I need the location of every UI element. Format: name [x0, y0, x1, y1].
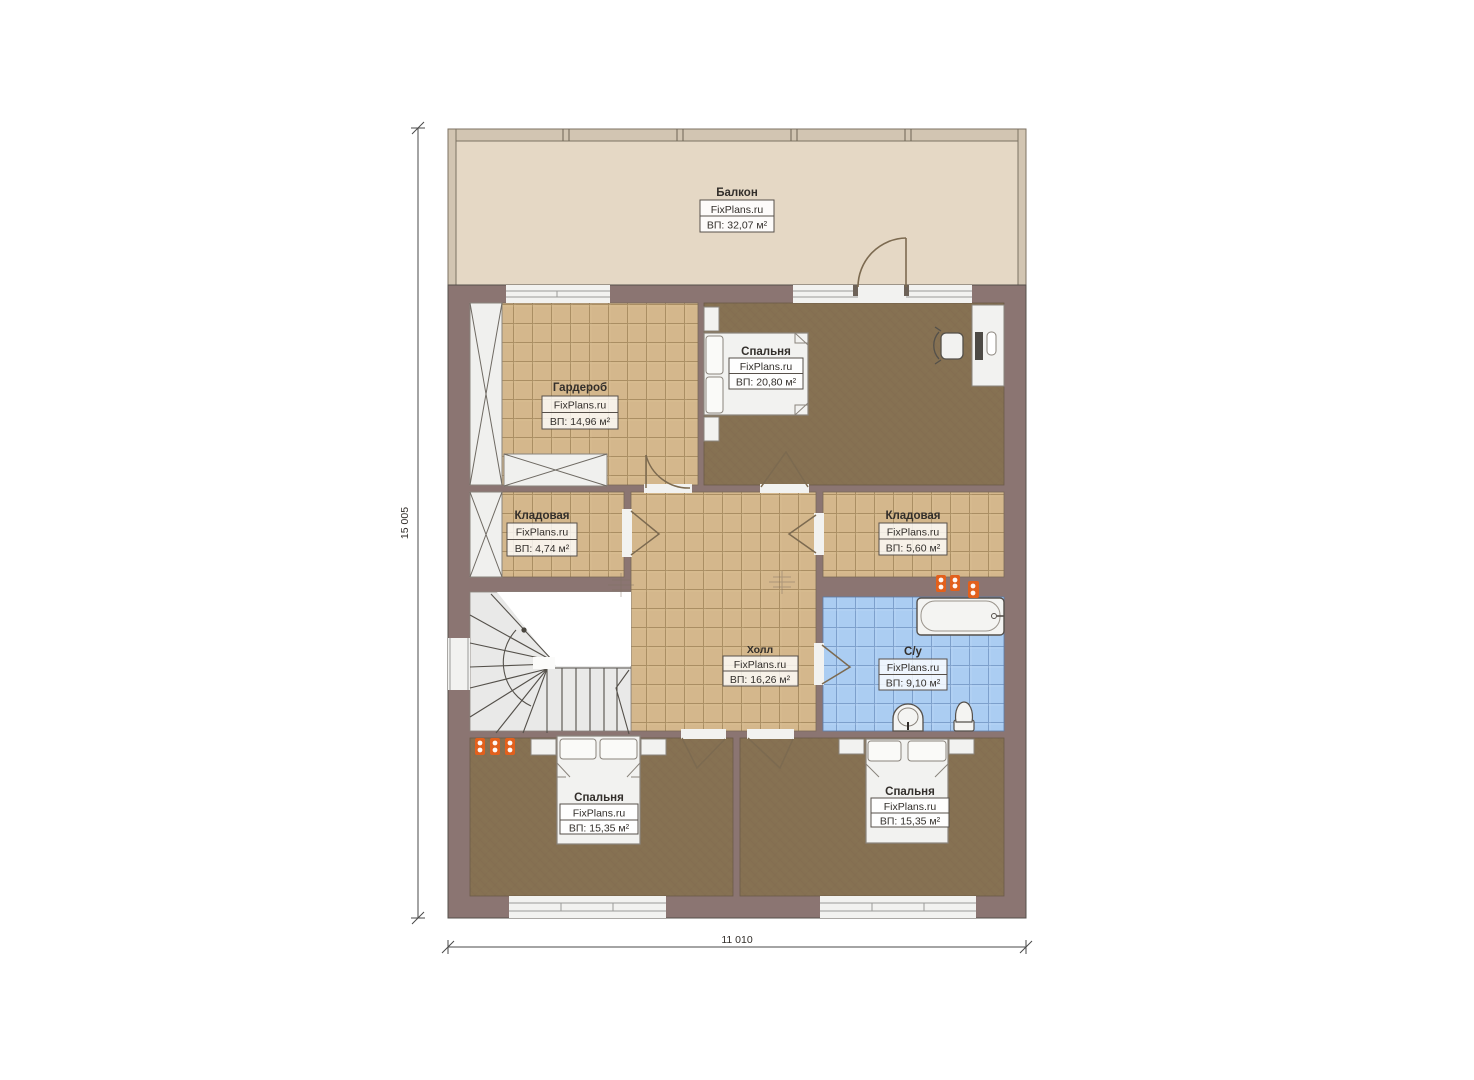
svg-text:ВП: 15,35 м²: ВП: 15,35 м²	[880, 816, 941, 828]
svg-text:Кладовая: Кладовая	[514, 510, 569, 522]
svg-text:FixPlans.ru: FixPlans.ru	[711, 204, 764, 216]
svg-text:ВП: 15,35 м²: ВП: 15,35 м²	[569, 823, 630, 835]
svg-text:FixPlans.ru: FixPlans.ru	[740, 361, 793, 373]
svg-text:15 005: 15 005	[399, 507, 411, 539]
svg-text:Кладовая: Кладовая	[885, 510, 940, 522]
svg-text:FixPlans.ru: FixPlans.ru	[734, 659, 787, 671]
svg-text:Гардероб: Гардероб	[553, 382, 607, 394]
svg-text:ВП: 4,74 м²: ВП: 4,74 м²	[515, 543, 570, 555]
svg-text:FixPlans.ru: FixPlans.ru	[573, 808, 626, 820]
svg-text:ВП: 20,80 м²: ВП: 20,80 м²	[736, 377, 797, 389]
svg-text:FixPlans.ru: FixPlans.ru	[884, 801, 937, 813]
svg-text:ВП: 14,96 м²: ВП: 14,96 м²	[550, 416, 611, 428]
svg-text:11 010: 11 010	[721, 934, 752, 946]
svg-text:FixPlans.ru: FixPlans.ru	[887, 662, 940, 674]
svg-text:ВП: 16,26 м²: ВП: 16,26 м²	[730, 674, 791, 686]
svg-text:Холл: Холл	[747, 644, 773, 656]
svg-text:ВП: 32,07 м²: ВП: 32,07 м²	[707, 220, 768, 232]
svg-text:FixPlans.ru: FixPlans.ru	[887, 527, 940, 539]
svg-text:ВП: 9,10 м²: ВП: 9,10 м²	[886, 678, 941, 690]
svg-text:Спальня: Спальня	[574, 792, 624, 804]
svg-text:ВП: 5,60 м²: ВП: 5,60 м²	[886, 543, 941, 555]
svg-text:Спальня: Спальня	[741, 346, 791, 358]
svg-text:FixPlans.ru: FixPlans.ru	[554, 400, 607, 412]
svg-text:С/у: С/у	[904, 646, 923, 658]
svg-text:Спальня: Спальня	[885, 786, 935, 798]
svg-text:FixPlans.ru: FixPlans.ru	[516, 527, 569, 539]
svg-text:Балкон: Балкон	[716, 187, 758, 199]
